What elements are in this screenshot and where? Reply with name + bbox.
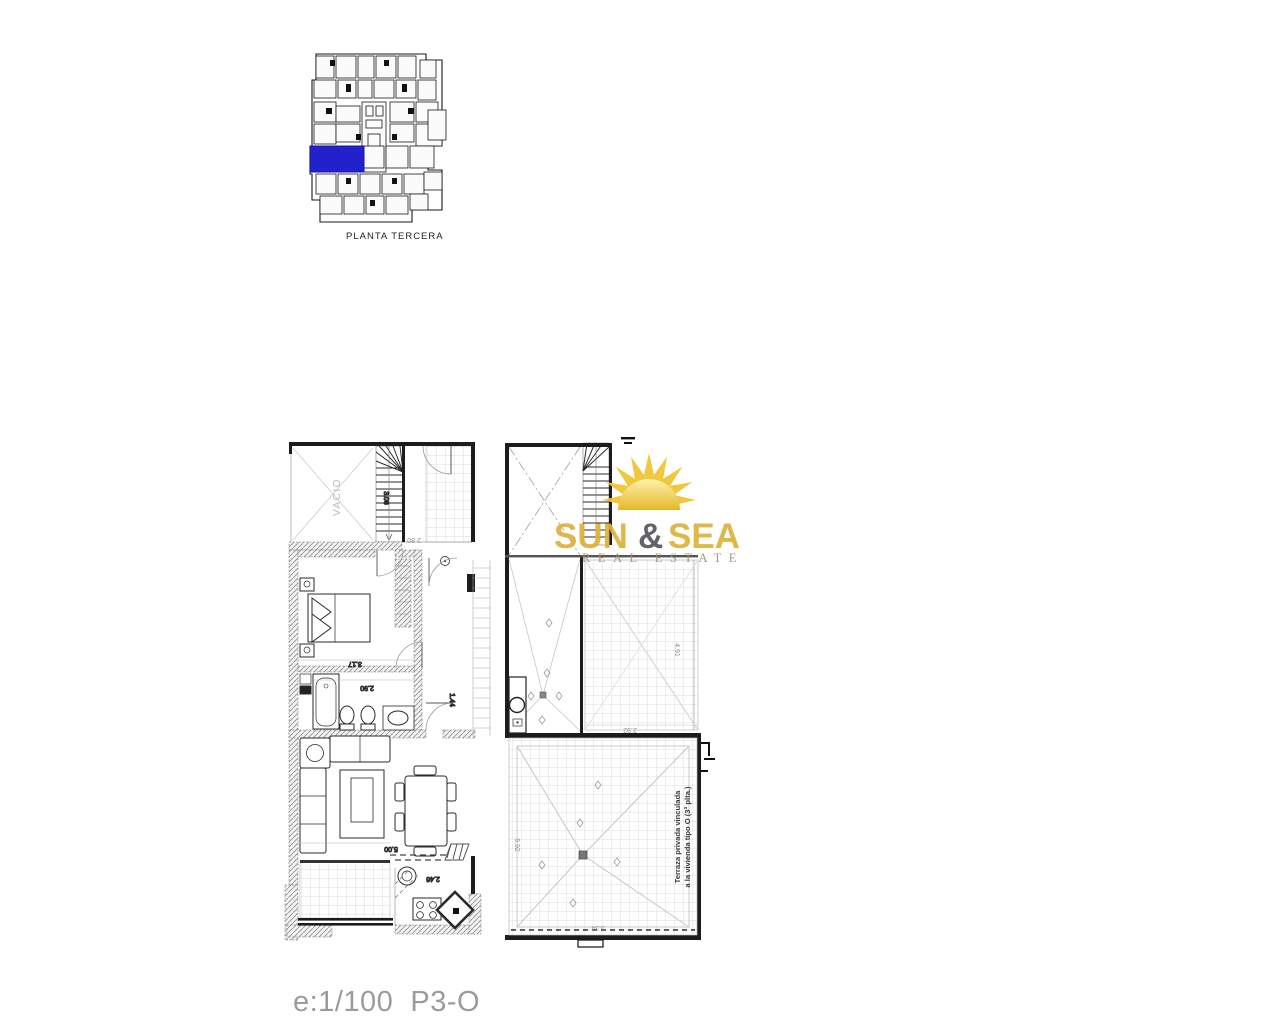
drain [540, 692, 546, 698]
stairs-dimension: 3.06 [382, 491, 389, 505]
nightstand [300, 578, 314, 591]
apartment-floor-plan: VACIO 3.06 2.80 [283, 428, 498, 953]
railing [298, 918, 393, 921]
main-terrace: Terraza privada vinculada a la vivienda … [509, 738, 715, 947]
chair [447, 813, 456, 831]
drain [579, 851, 587, 859]
adjacent-wall-marks [621, 437, 635, 444]
key-plan-drawing [296, 50, 456, 228]
nightstand [300, 644, 314, 657]
upper-terrace-width-dimension: 2.92 [623, 726, 637, 733]
chair [395, 813, 404, 831]
bathroom-dimension: 2.90 [360, 684, 374, 691]
upper-terrace-height-dimension: 4.91 [673, 643, 680, 657]
main-terrace-width-dimension: 5.34 [591, 924, 605, 931]
void-open-area [509, 447, 580, 555]
bedroom-dimension: 3.17 [348, 660, 362, 667]
bathroom: 2.90 1.44 [300, 674, 455, 730]
side-gallery [473, 560, 490, 736]
highlighted-unit [310, 146, 364, 172]
entry-hall: 2.80 [376, 446, 472, 543]
dividing-wall [505, 555, 698, 557]
corner-steps [701, 743, 715, 771]
wall-opening-symbol [445, 844, 469, 860]
chair [447, 783, 456, 801]
dining-table [405, 776, 447, 846]
vacio-label: VACIO [332, 478, 343, 516]
chair [414, 766, 436, 775]
door-arc [426, 703, 453, 730]
kitchen-dimension: 2.46 [426, 875, 440, 882]
key-plan-title: PLANTA TERCERA [346, 231, 444, 242]
balcony [298, 860, 393, 926]
living-dimension: 5.00 [384, 845, 398, 852]
upper-staircase [583, 443, 609, 545]
kitchen: 2.46 [395, 867, 473, 928]
upper-terrace: 4.91 2.92 [585, 560, 698, 733]
utility-closet [509, 677, 526, 733]
toilet [340, 706, 354, 724]
railing [298, 923, 393, 926]
bidet [361, 706, 375, 724]
sofa-corner [300, 738, 330, 768]
main-terrace-height-dimension: 5.92 [513, 838, 520, 852]
terrace-note-line2: a la vivienda tipo O (3ª plta.) [683, 786, 692, 888]
chair [395, 783, 404, 801]
hall-top-dimension: 2.80 [407, 536, 421, 543]
terrace-floor-plan: 4.91 2.92 Terraza privada vinculada a la… [503, 425, 718, 955]
scale-label: e:1/100 P3-O [293, 986, 480, 1019]
staircase: 3.06 [376, 446, 403, 542]
terrace-notch [578, 940, 603, 947]
floor-plan-page: PLANTA TERCERA VACIO [0, 0, 1280, 1024]
sofa-seats [300, 768, 326, 853]
door-arc [429, 558, 457, 586]
roof-room [509, 559, 580, 733]
vacio-room: VACIO [291, 446, 373, 542]
hall-dimension: 1.44 [448, 693, 455, 707]
sink [388, 711, 408, 725]
living-room: 5.00 [300, 736, 469, 860]
washer [300, 686, 311, 694]
terrace-note-line1: Terraza privada vinculada [673, 790, 682, 883]
